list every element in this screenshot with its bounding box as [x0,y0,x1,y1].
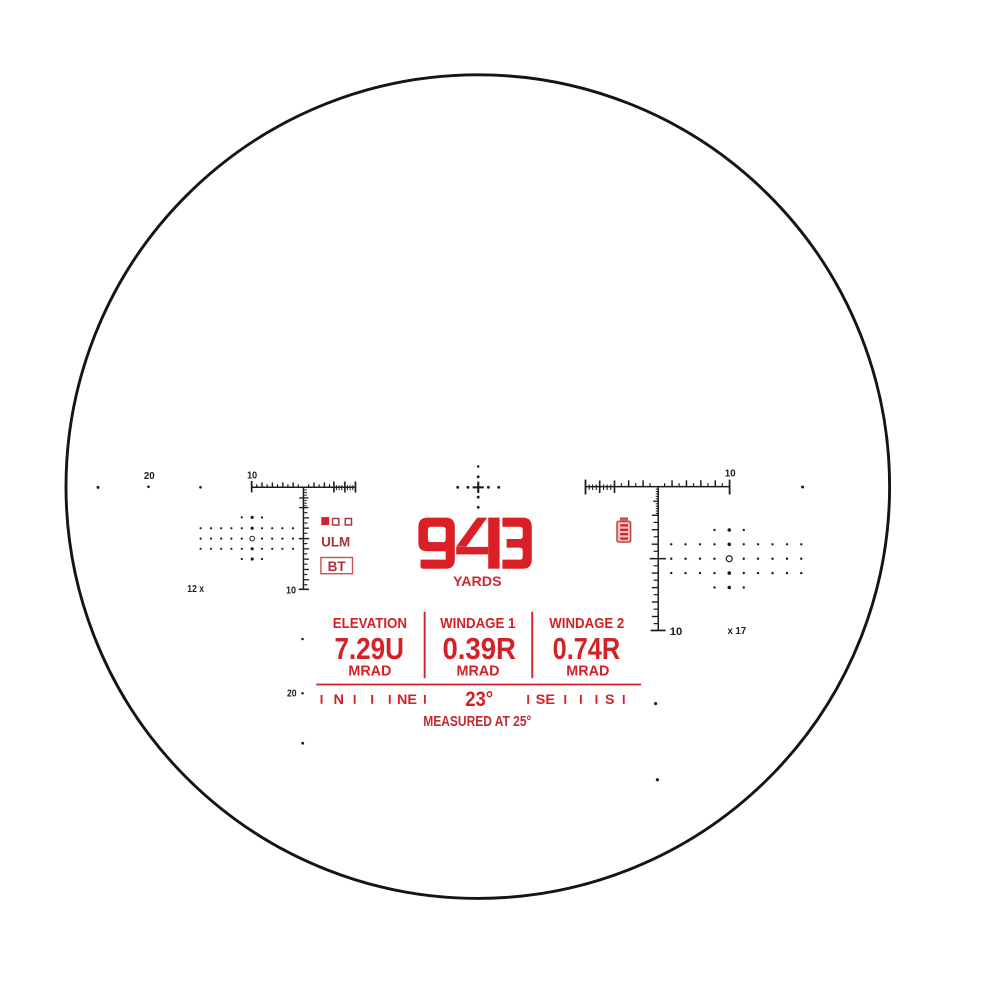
svg-text:NE: NE [397,692,417,708]
svg-text:20: 20 [144,471,155,482]
svg-text:7.29U: 7.29U [334,632,404,666]
svg-text:23°: 23° [465,687,493,711]
svg-text:MEASURED AT 25°: MEASURED AT 25° [423,714,531,730]
svg-text:WINDAGE 2: WINDAGE 2 [549,616,624,632]
svg-text:BT: BT [328,558,346,574]
svg-text:ELEVATION: ELEVATION [333,616,407,632]
svg-text:10: 10 [670,626,683,638]
svg-text:20: 20 [287,688,297,699]
svg-text:10: 10 [286,585,296,596]
svg-text:x 17: x 17 [728,626,747,637]
svg-text:0.74R: 0.74R [553,632,621,666]
svg-text:MRAD: MRAD [566,663,609,679]
svg-text:12 x: 12 x [187,584,204,595]
svg-text:MRAD: MRAD [457,663,500,679]
svg-text:N: N [334,692,345,708]
svg-text:MRAD: MRAD [348,663,391,679]
svg-text:WINDAGE 1: WINDAGE 1 [440,616,515,632]
svg-text:10: 10 [247,471,257,482]
svg-text:SE: SE [536,692,556,708]
svg-text:10: 10 [725,468,736,479]
svg-text:0.39R: 0.39R [442,632,516,666]
svg-text:YARDS: YARDS [453,573,502,589]
svg-text:S: S [605,692,615,708]
svg-text:ULM: ULM [321,534,350,550]
